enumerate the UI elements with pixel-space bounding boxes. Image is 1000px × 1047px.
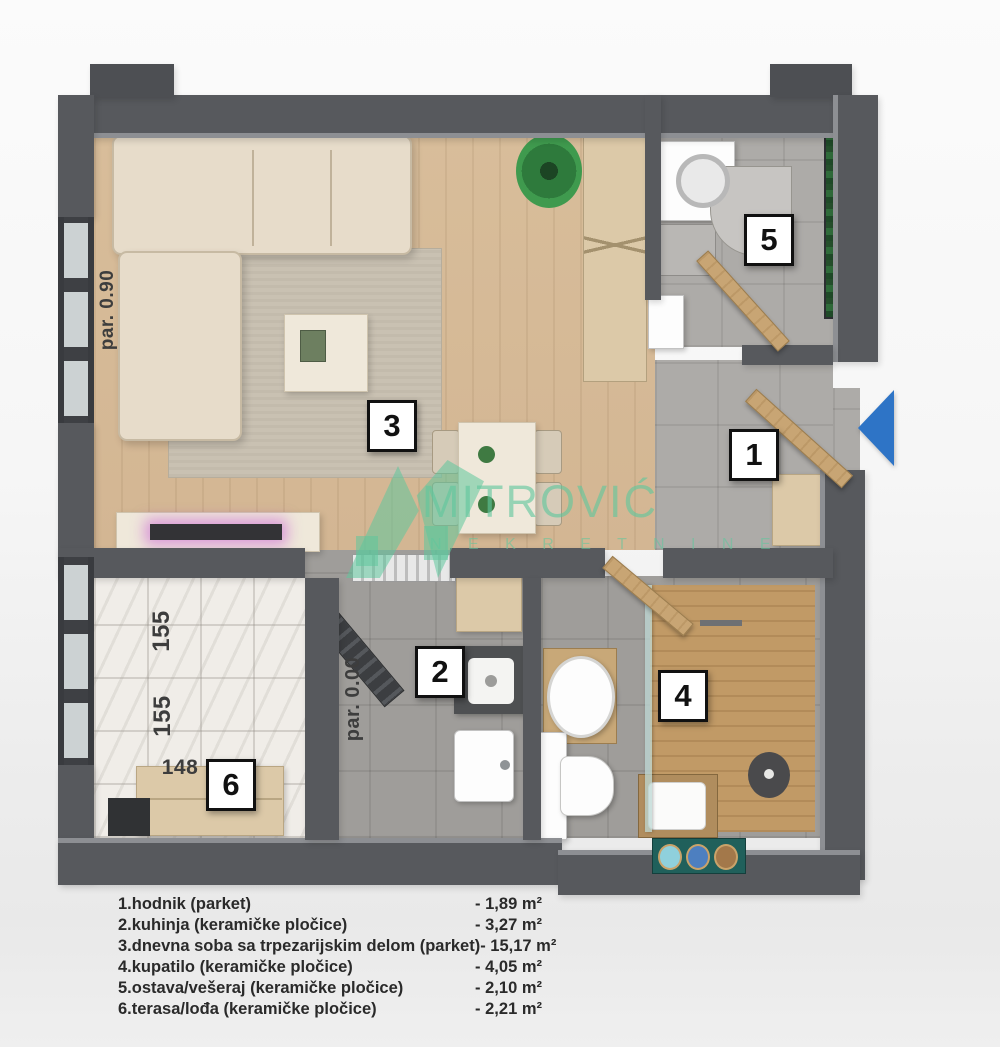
dimension-parapet-left: par. 0.90	[97, 260, 119, 360]
toiletry-jar	[686, 844, 710, 870]
legend-row: 6.terasa/lođa (keramičke pločice) - 2,21…	[118, 999, 542, 1020]
toiletry-jar	[658, 844, 682, 870]
legend: 1.hodnik (parket) - 1,89 m² 2.kuhinja (k…	[118, 894, 542, 1020]
shower-drain-dot	[764, 769, 774, 779]
dimension-155-upper: 155	[148, 583, 172, 679]
legend-label: 5.ostava/vešeraj (keramičke pločice)	[118, 978, 403, 999]
room-marker-4: 4	[658, 670, 708, 722]
cooktop-burner	[485, 675, 497, 687]
room-marker-3: 3	[367, 400, 417, 452]
wall-storage-bottom	[742, 345, 833, 365]
dining-chair	[432, 482, 460, 526]
potted-plant	[516, 134, 582, 208]
room-marker-6: 6	[206, 759, 256, 811]
dining-plant	[478, 446, 495, 463]
window-living	[58, 217, 94, 423]
entrance-arrow-icon	[858, 390, 894, 466]
wall-living-kitchen-left	[58, 548, 305, 578]
room-number: 4	[674, 678, 691, 714]
legend-label: 6.terasa/lođa (keramičke pločice)	[118, 999, 377, 1020]
window-terrace	[58, 557, 94, 765]
hallway-entry-floor	[833, 388, 860, 472]
bath-sink-round	[547, 656, 615, 738]
terrace-dark-box	[108, 798, 150, 836]
legend-label: 1.hodnik (parket)	[118, 894, 251, 915]
room-marker-1: 1	[729, 429, 779, 481]
vanity-basin	[648, 782, 706, 830]
shower-glass	[645, 585, 652, 832]
wardrobe	[583, 108, 647, 382]
sofa-cushion-line	[330, 150, 332, 246]
wall-bottom-left	[58, 838, 562, 885]
dining-table	[458, 422, 536, 534]
coffee-table	[284, 314, 368, 392]
dining-chair	[534, 482, 562, 526]
radiator	[352, 554, 456, 582]
legend-row: 3.dnevna soba sa trpezarijskim delom (pa…	[118, 936, 542, 957]
tv-flatscreen	[150, 524, 282, 540]
kitchen-upper-cabinet	[456, 570, 522, 632]
legend-row: 2.kuhinja (keramičke pločice) - 3,27 m²	[118, 915, 542, 936]
legend-row: 5.ostava/vešeraj (keramičke pločice) - 2…	[118, 978, 542, 999]
sofa-cushion-line	[252, 150, 254, 246]
coffee-table-book	[300, 330, 326, 362]
legend-label: 2.kuhinja (keramičke pločice)	[118, 915, 347, 936]
wall-left-upper	[58, 95, 94, 217]
washing-machine-door	[676, 154, 730, 208]
wall-kitchen-bath-divider	[523, 578, 541, 840]
floor-plan: 1 2 3 4 5 6 par. 0.90 155 155 148 par. 0…	[0, 0, 1000, 1047]
legend-area: - 1,89 m²	[475, 894, 542, 915]
legend-label: 3.dnevna soba sa trpezarijskim delom (pa…	[118, 936, 480, 957]
dining-chair	[534, 430, 562, 474]
sofa-horizontal	[112, 135, 412, 255]
legend-row: 4.kupatilo (keramičke pločice) - 4,05 m²	[118, 957, 542, 978]
wall-right-lower	[820, 470, 865, 880]
wall-right-upper	[833, 95, 878, 362]
dining-plant	[478, 496, 495, 513]
shower-arm	[700, 620, 742, 626]
wall-bath-top	[663, 548, 833, 578]
toiletry-jar	[714, 844, 738, 870]
wall-living-kitchen-right	[450, 548, 605, 578]
legend-area: - 2,10 m²	[475, 978, 542, 999]
legend-row: 1.hodnik (parket) - 1,89 m²	[118, 894, 542, 915]
kitchen-faucet	[500, 760, 510, 770]
sofa-chaise	[118, 251, 242, 441]
room-number: 1	[745, 437, 762, 473]
dimension-155-lower: 155	[149, 668, 173, 764]
room-number: 3	[383, 408, 400, 444]
wall-pillar-topright	[770, 64, 852, 97]
dimension-148: 148	[152, 756, 208, 780]
room-number: 6	[222, 767, 239, 803]
wall-top	[90, 95, 852, 138]
toilet-bowl	[560, 756, 614, 816]
room-marker-2: 2	[415, 646, 465, 698]
legend-label: 4.kupatilo (keramičke pločice)	[118, 957, 353, 978]
room-number: 2	[431, 654, 448, 690]
legend-area: - 3,27 m²	[475, 915, 542, 936]
wall-pillar-topleft	[90, 64, 174, 97]
dining-chair	[432, 430, 460, 474]
storage-door-panel	[648, 295, 684, 349]
legend-area: - 2,21 m²	[475, 999, 542, 1020]
wall-left-middle	[58, 423, 94, 557]
wall-storage-left	[645, 95, 661, 300]
wall-terrace-divider	[305, 578, 339, 840]
legend-area: - 15,17 m²	[480, 936, 556, 957]
room-marker-5: 5	[744, 214, 794, 266]
room-number: 5	[760, 222, 777, 258]
dimension-parapet-inner: par. 0.00	[342, 644, 364, 754]
legend-area: - 4,05 m²	[475, 957, 542, 978]
